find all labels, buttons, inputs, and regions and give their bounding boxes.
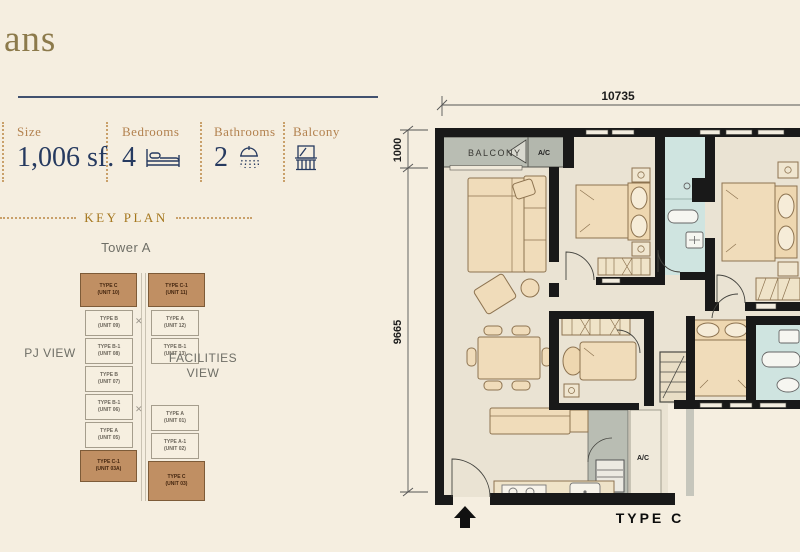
balcony-icon <box>293 144 319 172</box>
spec-row: Size 1,006 sf. Bedrooms 4 Bathrooms 2 <box>0 118 390 188</box>
unit-type: TYPE A <box>166 411 184 418</box>
unit-number: (UNIT 03A) <box>96 466 122 473</box>
spec-label: Balcony <box>293 124 340 140</box>
keyplan-unit-block: TYPE C (UNIT 03) <box>148 461 205 501</box>
nightstand <box>778 262 798 276</box>
keyplan-unit-block: TYPE C (UNIT 10) <box>80 273 137 307</box>
pj-view-label: PJ VIEW <box>10 346 90 361</box>
unit-type: TYPE C-1 <box>97 459 120 466</box>
unit-number: (UNIT 06) <box>98 407 120 414</box>
entrance-arrow-icon <box>454 506 476 528</box>
unit-type: TYPE A <box>166 316 184 323</box>
chair <box>512 381 530 390</box>
nightstand <box>778 162 798 178</box>
unit-number: (UNIT 03) <box>166 481 188 488</box>
sink-icon <box>779 330 799 343</box>
unit-type: TYPE A <box>100 428 118 435</box>
brochure-page: { "page": { "title_fragment": "ans" }, "… <box>0 0 800 552</box>
lift-cross-icon: ✕ <box>135 405 143 414</box>
keyplan-unit-block: TYPE A (UNIT 01) <box>151 405 199 431</box>
toilet-icon <box>668 210 698 223</box>
duct <box>686 404 694 496</box>
spec-value: 4 <box>122 144 136 172</box>
spec-value: 2 <box>214 144 228 172</box>
spec-size: Size 1,006 sf. <box>17 124 114 172</box>
unit-type: TYPE C <box>99 283 117 290</box>
chair <box>484 326 502 335</box>
spec-separator <box>283 122 285 182</box>
spec-label: Size <box>17 124 114 140</box>
shower-icon <box>237 145 261 172</box>
divider-rule <box>18 96 378 98</box>
unit-number: (UNIT 02) <box>164 446 186 453</box>
unit-type: TYPE B <box>100 316 118 323</box>
unit-type: TYPE B-1 <box>98 400 121 407</box>
unit-number: (UNIT 12) <box>164 323 186 330</box>
bed <box>694 340 752 396</box>
facilities-view-line1: FACILITIES <box>169 351 237 365</box>
toilet-icon <box>777 378 799 392</box>
unit-type: TYPE B-1 <box>98 344 121 351</box>
dimension-balcony-depth: 1000 <box>392 138 404 162</box>
bathroom-1 <box>658 137 705 275</box>
spec-separator <box>2 122 4 182</box>
keyplan-unit-block: TYPE A-1 (UNIT 02) <box>151 433 199 459</box>
keyplan-unit-block: TYPE B-1 (UNIT 08) <box>85 338 133 364</box>
dotted-line <box>176 217 252 219</box>
unit-type: TYPE C <box>167 474 185 481</box>
lift-cross-icon: ✕ <box>135 317 143 326</box>
unit-type: TYPE C-1 <box>165 283 188 290</box>
keyplan-unit-block: TYPE B-1 (UNIT 06) <box>85 394 133 420</box>
unit-number: (UNIT 08) <box>98 351 120 358</box>
bathroom-2 <box>755 325 800 401</box>
unit-number: (UNIT 09) <box>98 323 120 330</box>
unit-type: TYPE B <box>100 372 118 379</box>
keyplan-unit-block: TYPE C-1 (UNIT 11) <box>148 273 205 307</box>
dotted-line <box>0 217 76 219</box>
chair <box>484 381 502 390</box>
tower-label: Tower A <box>60 240 192 255</box>
bed <box>722 183 775 261</box>
keyplan-diagram: ✕ ✕ TYPE C (UNIT 10) TYPE B (UNIT 09) TY… <box>75 265 210 505</box>
unit-number: (UNIT 07) <box>98 379 120 386</box>
bedroom-5-furniture <box>694 320 752 396</box>
keyplan-heading: KEY PLAN <box>84 210 167 226</box>
tv-console <box>490 408 588 434</box>
unit-type: TYPE A-1 <box>164 439 186 446</box>
spec-balcony: Balcony <box>293 124 340 172</box>
chair <box>512 326 530 335</box>
spec-bedrooms: Bedrooms 4 <box>122 124 181 172</box>
single-bed <box>580 342 636 380</box>
keyplan-corridor <box>141 273 146 501</box>
unit-number: (UNIT 05) <box>98 435 120 442</box>
unit-number: (UNIT 01) <box>164 418 186 425</box>
keyplan-unit-block: TYPE C-1 (UNIT 03A) <box>80 450 137 482</box>
type-c-label: TYPE C <box>616 510 685 526</box>
keyplan-unit-block: TYPE B (UNIT 07) <box>85 366 133 392</box>
spec-separator <box>200 122 202 182</box>
keyplan-header: KEY PLAN <box>0 210 252 226</box>
facilities-view-label: FACILITIES VIEW <box>165 351 241 381</box>
unit-number: (UNIT 11) <box>166 290 188 297</box>
ac-label-top: A/C <box>538 150 550 157</box>
side-table <box>521 279 539 297</box>
bathtub-icon <box>762 352 800 367</box>
bed-icon <box>145 145 181 171</box>
chair <box>467 348 476 366</box>
balcony-label: BALCONY <box>468 148 522 158</box>
spec-bathrooms: Bathrooms 2 <box>214 124 276 172</box>
facilities-view-line2: VIEW <box>187 366 220 380</box>
keyplan-unit-block: TYPE A (UNIT 05) <box>85 422 133 448</box>
spec-label: Bedrooms <box>122 124 181 140</box>
dimension-height: 9665 <box>392 320 404 344</box>
keyplan-unit-block: TYPE A (UNIT 12) <box>151 310 199 336</box>
unit-type: TYPE B-1 <box>164 344 187 351</box>
nightstand <box>632 242 650 256</box>
spec-value: 1,006 sf. <box>17 144 114 172</box>
ac-label-bottom: A/C <box>637 455 649 462</box>
spec-label: Bathrooms <box>214 124 276 140</box>
nightstand <box>632 168 650 182</box>
dining-table <box>478 337 540 379</box>
shelf-unit <box>660 352 687 402</box>
unit-number: (UNIT 10) <box>98 290 120 297</box>
window <box>450 166 522 171</box>
floorplan: 10735 1000 9665 BALCONY A/C A/C <box>388 73 800 543</box>
page-title-fragment: ans <box>4 18 56 61</box>
dimension-width: 10735 <box>601 89 635 103</box>
living-room-furniture <box>468 176 546 315</box>
keyplan-unit-block: TYPE B (UNIT 09) <box>85 310 133 336</box>
floorplan-svg: 10735 1000 9665 BALCONY A/C A/C <box>388 73 800 543</box>
